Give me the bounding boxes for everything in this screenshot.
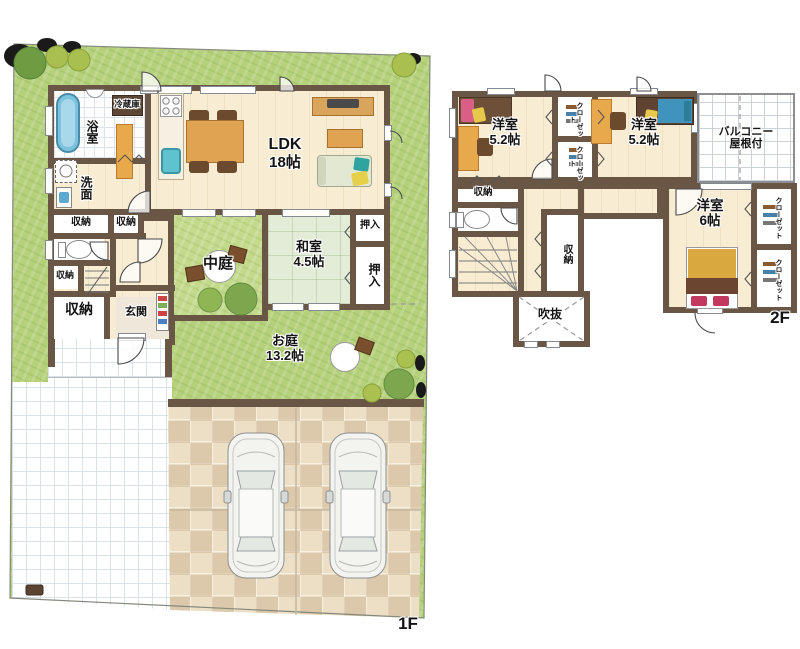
room-label-storage: 収納 (50, 270, 80, 280)
balcony-roof: 屋根付 (730, 138, 763, 150)
shoe-shelf (158, 296, 167, 301)
wall-segment (48, 339, 55, 367)
window (45, 168, 53, 194)
garden-name: お庭 (272, 333, 298, 348)
wall-segment (458, 231, 524, 237)
room-label-storage-2f: 収納 (458, 188, 508, 199)
dining-table (186, 120, 244, 163)
window (546, 341, 560, 348)
garden-door (384, 183, 392, 197)
room-label-entrance: 玄関 (112, 306, 160, 318)
room-label-oshiire: 押入 (350, 220, 390, 231)
toilet-tank (456, 212, 464, 228)
washitsu-name: 和室 (296, 239, 322, 254)
driveway (168, 399, 424, 618)
cushion-yellow (351, 171, 369, 187)
western-room-size: 5.2帖 (628, 132, 659, 147)
sliding-door (282, 209, 330, 217)
cushion-teal (353, 157, 370, 172)
room-label-garden: お庭 13.2帖 (252, 334, 318, 363)
wall-segment (165, 339, 172, 377)
room-label-oshiire: 押入 (360, 248, 380, 302)
wall-segment (110, 285, 175, 291)
dining-chair (217, 161, 237, 173)
block-hall-2f (578, 183, 663, 219)
window (308, 303, 340, 311)
stove (160, 95, 182, 117)
window (449, 212, 456, 228)
wall-segment (518, 189, 524, 291)
room-label-western-3: 洋室 6帖 (675, 198, 745, 228)
window (449, 250, 456, 278)
room-label-storage: 収納 (108, 217, 144, 228)
room-label-washitsu: 和室 4.5帖 (276, 240, 342, 269)
room-label-storage: 収納 (56, 217, 106, 228)
western-room-name: 洋室 (492, 117, 518, 132)
kitchen-cabinet (116, 124, 133, 179)
pillow-red (713, 296, 729, 306)
room-label-balcony: バルコニー 屋根付 (704, 126, 788, 151)
window (222, 209, 256, 217)
garden-door (384, 125, 392, 141)
window (487, 88, 515, 95)
toilet-bowl (66, 240, 92, 259)
pillow-red (691, 296, 707, 306)
room-label-storage-2f: 収納 (553, 232, 571, 276)
washbasin-bowl (59, 192, 69, 203)
window (700, 183, 752, 190)
floor-label-1f: 1F (390, 614, 426, 633)
room-label-ldk: LDK 18帖 (240, 136, 330, 172)
room-label-washroom: 洗面 (74, 160, 92, 216)
floor-plan: 浴室 冷蔵庫 洗面 収納 収納 収納 収納 玄関 LDK 18帖 中庭 和室 4… (0, 0, 800, 649)
toilet-bowl (464, 210, 490, 229)
window (182, 209, 216, 217)
bathtub-inner (61, 99, 75, 147)
wall-segment (145, 91, 151, 209)
window (524, 341, 538, 348)
room-label-storage-big: 収納 (50, 302, 108, 318)
bed-blanket-gold (688, 249, 736, 280)
window (200, 86, 256, 94)
floor-label-2f: 2F (762, 308, 798, 327)
room-label-western-1: 洋室 5.2帖 (463, 118, 547, 147)
entrance-door (118, 333, 146, 341)
room-label-western-2: 洋室 5.2帖 (602, 118, 686, 147)
window (45, 240, 53, 260)
garden-curb (168, 399, 424, 407)
garden-size: 13.2帖 (266, 348, 304, 363)
toilet-tank (58, 242, 66, 258)
window (272, 303, 304, 311)
room-label-closet: クローゼット (766, 256, 782, 304)
western-room-name: 洋室 (631, 117, 657, 132)
kitchen-sink (161, 148, 181, 174)
dining-chair (189, 161, 209, 173)
ldk-name: LDK (269, 136, 302, 153)
room-label-void: 吹抜 (520, 308, 580, 321)
shoe-shelf (158, 319, 167, 324)
window (630, 88, 658, 95)
label-fridge: 冷蔵庫 (110, 100, 144, 110)
window (45, 106, 53, 136)
western-room-size: 5.2帖 (489, 132, 520, 147)
tv (327, 99, 359, 108)
western-room-size: 6帖 (699, 213, 720, 228)
room-label-bath: 浴室 (80, 104, 98, 160)
ldk-size: 18帖 (269, 154, 301, 171)
room-label-closet: クローゼット (567, 99, 583, 139)
low-table (327, 129, 363, 148)
door (140, 86, 158, 94)
room-label-closet: クローゼット (766, 194, 782, 242)
entrance-porch (48, 339, 172, 378)
wall-segment (350, 241, 390, 247)
bed-frame-band (686, 278, 738, 294)
room-label-closet: クローゼット (567, 143, 583, 183)
room-label-courtyard: 中庭 (192, 256, 244, 273)
balcony-name: バルコニー (719, 126, 774, 138)
western-room-name: 洋室 (697, 198, 724, 213)
washitsu-size: 4.5帖 (293, 254, 324, 269)
window (449, 108, 456, 138)
